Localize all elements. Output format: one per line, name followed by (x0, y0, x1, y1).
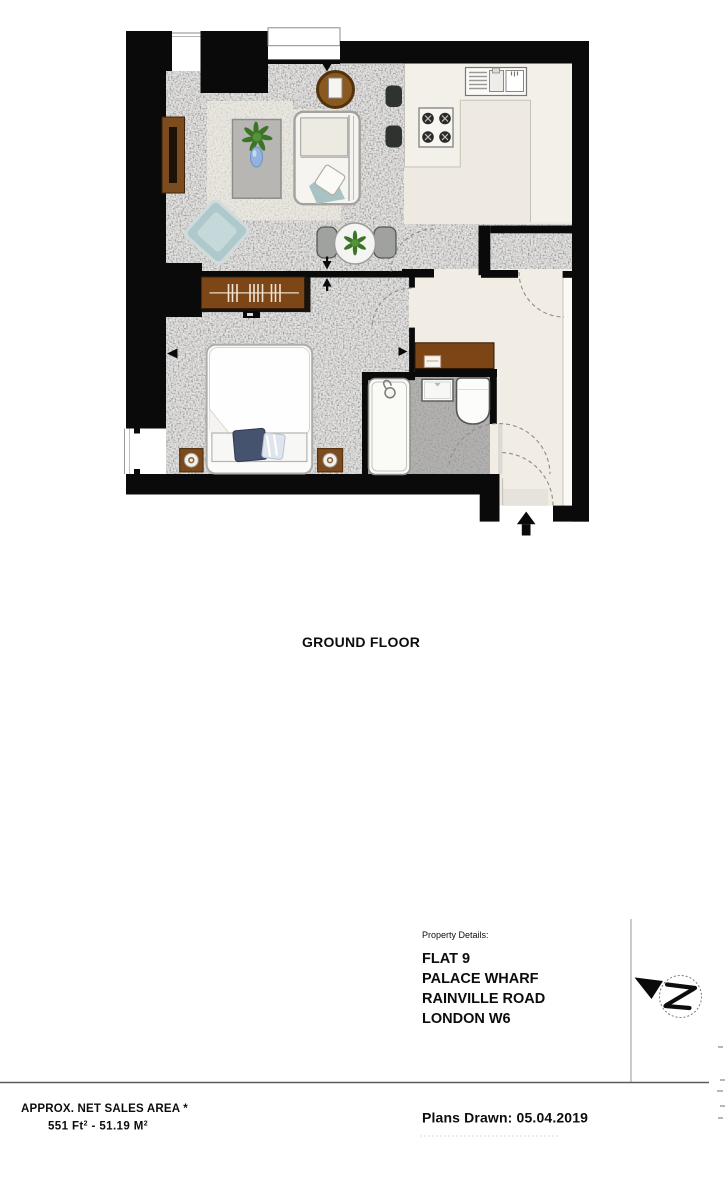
svg-text:PALACE WHARF: PALACE WHARF (422, 971, 539, 987)
svg-text:Property Details:: Property Details: (422, 930, 489, 940)
svg-text:FLAT 9: FLAT 9 (422, 951, 470, 967)
svg-text:APPROX. NET SALES AREA *: APPROX. NET SALES AREA * (21, 1103, 188, 1115)
svg-text:551 Ft2 - 51.19 M2: 551 Ft2 - 51.19 M2 (48, 1121, 148, 1133)
svg-text:RAINVILLE ROAD: RAINVILLE ROAD (422, 991, 545, 1007)
svg-text:LONDON W6: LONDON W6 (422, 1011, 511, 1027)
svg-text:GROUND FLOOR: GROUND FLOOR (302, 634, 420, 650)
svg-text:Plans Drawn: 05.04.2019: Plans Drawn: 05.04.2019 (422, 1110, 588, 1126)
